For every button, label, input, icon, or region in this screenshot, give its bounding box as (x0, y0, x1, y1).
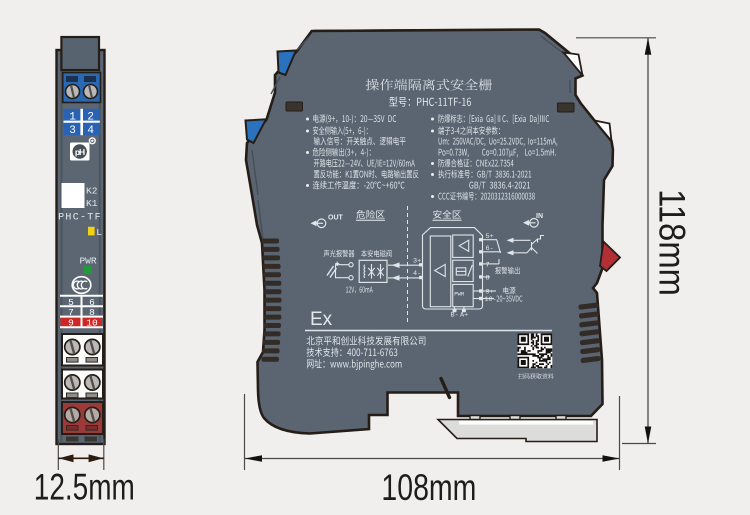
svg-text:6-: 6- (486, 245, 494, 253)
svg-text:PHC-TF: PHC-TF (58, 213, 102, 224)
svg-text:108mm: 108mm (381, 466, 476, 507)
svg-text:10: 10 (86, 318, 98, 329)
svg-text:PWR: PWR (454, 290, 465, 297)
svg-text:8: 8 (486, 274, 490, 282)
svg-text:2: 2 (87, 112, 94, 124)
svg-text:8: 8 (89, 307, 95, 318)
svg-text:pH: pH (75, 147, 85, 157)
svg-text:OUT: OUT (328, 215, 344, 222)
svg-text:L: L (96, 227, 102, 238)
svg-text:9: 9 (68, 318, 74, 329)
svg-text:3: 3 (69, 125, 76, 137)
svg-text:Ex: Ex (310, 309, 333, 330)
svg-text:118mm: 118mm (651, 189, 692, 296)
svg-text:1: 1 (69, 112, 76, 124)
svg-text:B-: B- (451, 312, 459, 320)
svg-text:4: 4 (87, 125, 94, 137)
svg-text:K1: K1 (86, 198, 98, 209)
svg-text:4-: 4- (413, 270, 421, 278)
svg-text:5+: 5+ (486, 233, 494, 241)
svg-text:IN: IN (536, 213, 543, 220)
svg-text:12.5mm: 12.5mm (34, 466, 135, 508)
svg-text:7: 7 (68, 307, 74, 318)
svg-text:7: 7 (486, 261, 490, 269)
svg-text:3+: 3+ (413, 257, 421, 265)
svg-text:K2: K2 (86, 186, 98, 197)
svg-text:10-: 10- (485, 296, 497, 304)
svg-text:PWR: PWR (79, 256, 96, 267)
svg-text:A+: A+ (460, 312, 468, 320)
